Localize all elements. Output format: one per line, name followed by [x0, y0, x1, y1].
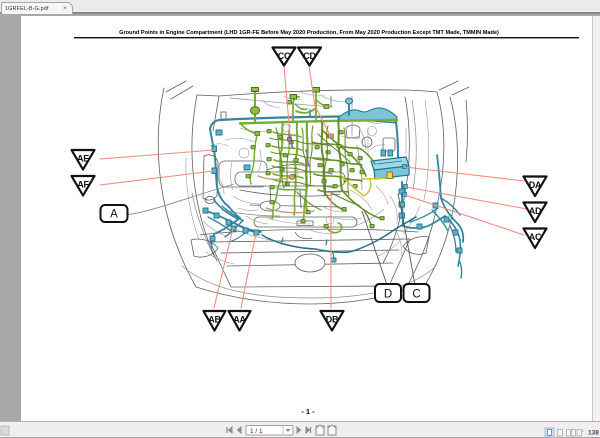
svg-text:C: C — [412, 289, 420, 301]
svg-text:AD: AD — [529, 206, 542, 216]
svg-text:AA: AA — [233, 315, 246, 325]
svg-text:CD: CD — [303, 51, 316, 61]
svg-text:DA: DA — [529, 180, 542, 190]
svg-text:DB: DB — [326, 315, 339, 325]
svg-text:AC: AC — [529, 232, 542, 242]
svg-text:AF: AF — [77, 180, 89, 190]
svg-text:AE: AE — [77, 154, 89, 164]
svg-text:A: A — [110, 209, 118, 221]
svg-text:AB: AB — [208, 315, 221, 325]
svg-text:CC: CC — [278, 51, 291, 61]
svg-text:- 1 -: - 1 - — [301, 407, 315, 416]
svg-text:D: D — [384, 289, 392, 301]
svg-text:Ground Points in Engine Compar: Ground Points in Engine Compartment (LHD… — [119, 30, 499, 36]
